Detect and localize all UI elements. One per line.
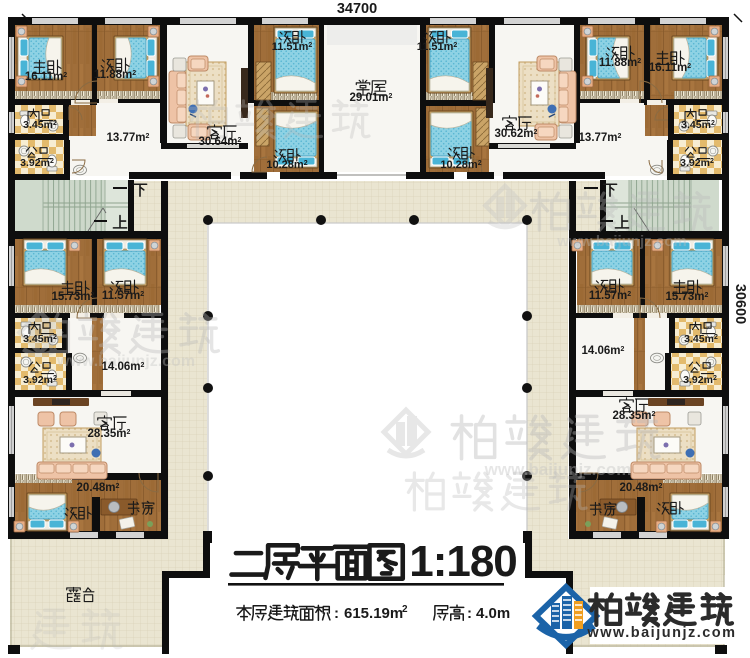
- svg-text:www.baijunjz.com: www.baijunjz.com: [586, 625, 736, 641]
- svg-text:28.35m2: 28.35m2: [88, 428, 131, 440]
- svg-text:3.92m2: 3.92m2: [20, 157, 54, 169]
- svg-text:20.48m2: 20.48m2: [620, 482, 663, 494]
- svg-text:30600: 30600: [732, 284, 748, 324]
- svg-text:30.62m2: 30.62m2: [495, 128, 538, 140]
- svg-text:16.11m2: 16.11m2: [649, 62, 691, 74]
- svg-text:1:180: 1:180: [409, 537, 517, 586]
- svg-text:10.28m2: 10.28m2: [440, 159, 481, 171]
- svg-text:15.73m2: 15.73m2: [52, 291, 95, 303]
- svg-text:28.35m2: 28.35m2: [613, 410, 656, 422]
- svg-text:13.77m2: 13.77m2: [107, 132, 150, 144]
- svg-text:10.28m2: 10.28m2: [266, 159, 307, 171]
- svg-text:11.57m2: 11.57m2: [589, 290, 631, 302]
- svg-text:15.73m2: 15.73m2: [666, 291, 709, 303]
- svg-text:615.19m: 615.19m: [344, 605, 403, 622]
- svg-text:3.92m2: 3.92m2: [683, 374, 717, 386]
- svg-text:11.88m2: 11.88m2: [599, 57, 641, 69]
- svg-text:16.11m2: 16.11m2: [25, 71, 67, 83]
- svg-text:20.48m2: 20.48m2: [77, 482, 120, 494]
- svg-text:34700: 34700: [337, 1, 377, 17]
- svg-text:13.77m2: 13.77m2: [579, 132, 622, 144]
- svg-text:11.88m2: 11.88m2: [94, 69, 136, 81]
- svg-text:3.92m2: 3.92m2: [23, 374, 57, 386]
- svg-text:www.baijunjz.com: www.baijunjz.com: [556, 233, 686, 250]
- svg-text:11.51m2: 11.51m2: [272, 41, 313, 53]
- svg-text:3.45m2: 3.45m2: [684, 333, 718, 345]
- svg-text:29.01m2: 29.01m2: [350, 92, 393, 104]
- svg-text:14.06m2: 14.06m2: [582, 345, 625, 357]
- svg-text::: :: [467, 605, 472, 622]
- svg-text:3.45m2: 3.45m2: [23, 333, 57, 345]
- svg-text:11.57m2: 11.57m2: [102, 290, 144, 302]
- svg-text:14.06m2: 14.06m2: [102, 361, 145, 373]
- svg-text:4.0m: 4.0m: [476, 605, 510, 622]
- svg-text:3.45m2: 3.45m2: [23, 119, 57, 131]
- svg-text:30.64m2: 30.64m2: [199, 136, 242, 148]
- svg-text::: :: [334, 605, 339, 622]
- svg-text:2: 2: [402, 604, 408, 615]
- svg-text:3.92m2: 3.92m2: [680, 157, 714, 169]
- svg-text:3.45m2: 3.45m2: [681, 119, 715, 131]
- svg-text:11.51m2: 11.51m2: [417, 41, 458, 53]
